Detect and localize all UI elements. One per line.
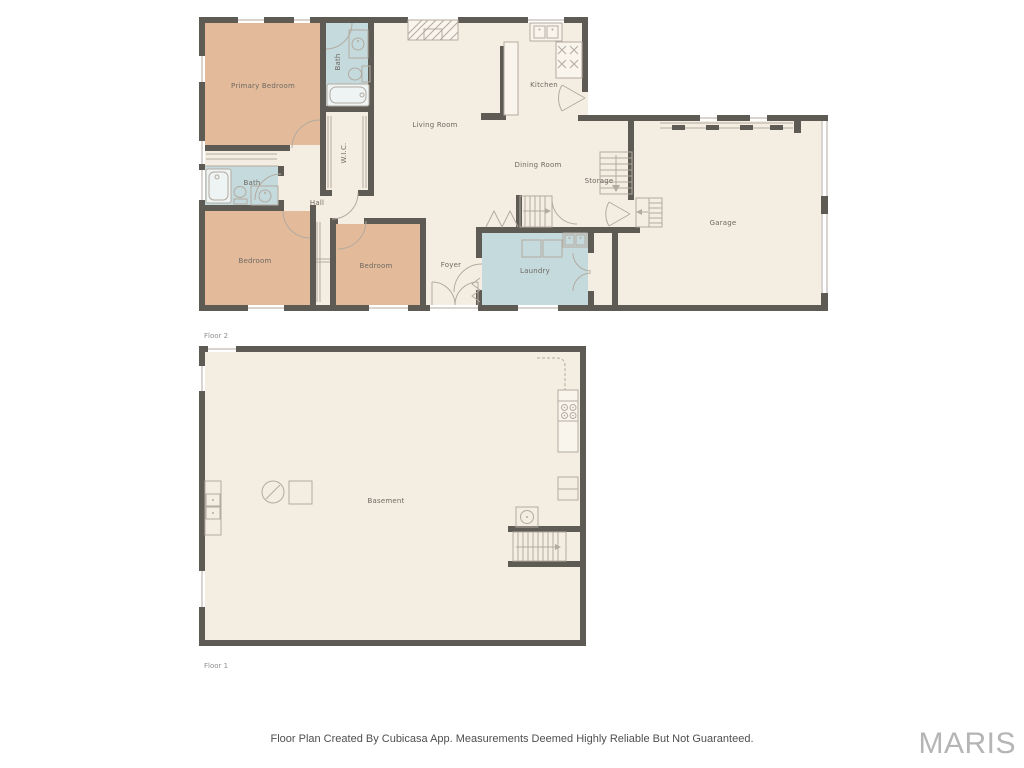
room-label-primary-bedroom: Primary Bedroom — [231, 82, 295, 90]
room-label-garage: Garage — [710, 219, 737, 227]
room-label-basement: Basement — [368, 497, 405, 505]
room-label-bedroom-left: Bedroom — [238, 257, 271, 265]
floor2-label: Floor 2 — [204, 332, 228, 340]
room-label-bath-top: Bath — [334, 53, 342, 70]
room-label-living-room: Living Room — [412, 121, 457, 129]
room-label-kitchen: Kitchen — [530, 81, 558, 89]
room-label-wic: W.I.C. — [340, 143, 348, 164]
floor1-room-labels: Basement — [368, 497, 405, 505]
floor2-plan: Primary Bedroom Bath W.I.C. Living Room … — [199, 17, 828, 340]
room-label-laundry: Laundry — [520, 267, 550, 275]
room-label-hall: Hall — [310, 199, 324, 207]
room-label-bath-left: Bath — [243, 179, 260, 187]
fireplace-icon — [408, 20, 458, 40]
floor1-plan: Basement Floor 1 — [199, 346, 586, 670]
room-label-dining-room: Dining Room — [515, 161, 562, 169]
disclaimer-text: Floor Plan Created By Cubicasa App. Meas… — [0, 733, 1024, 745]
floor1-footprint — [199, 346, 586, 646]
room-label-bedroom-mid: Bedroom — [359, 262, 392, 270]
room-label-storage: Storage — [585, 177, 614, 185]
floor1-label: Floor 1 — [204, 662, 228, 670]
floor-plan-canvas: Primary Bedroom Bath W.I.C. Living Room … — [0, 0, 1024, 768]
room-label-foyer: Foyer — [441, 261, 461, 269]
floor-plan-page: Primary Bedroom Bath W.I.C. Living Room … — [0, 0, 1024, 768]
maris-watermark: MARIS — [918, 727, 1016, 761]
